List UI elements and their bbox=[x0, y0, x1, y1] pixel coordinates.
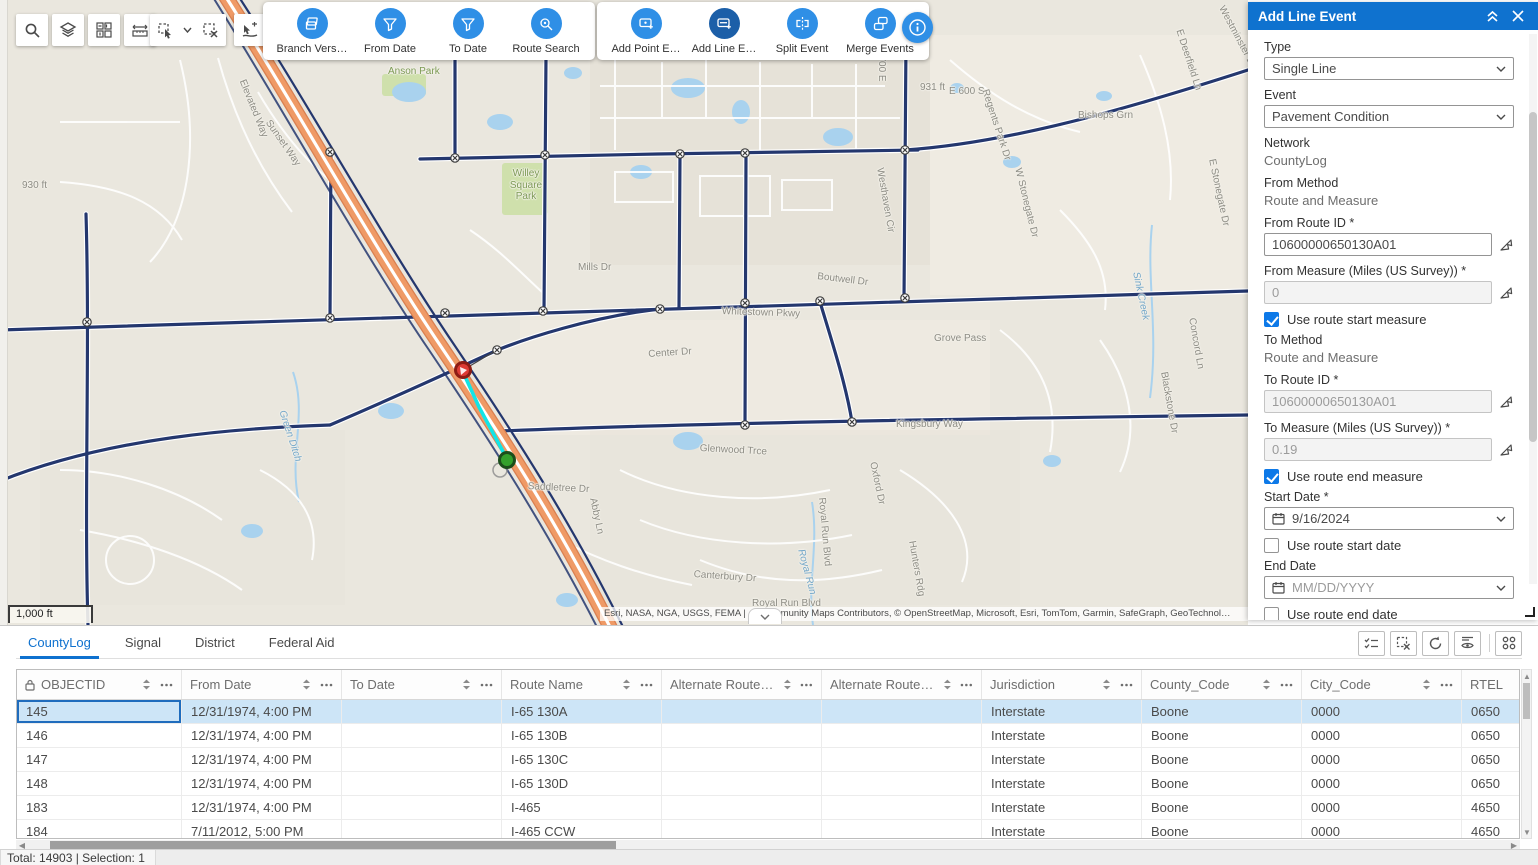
end-date-label: End Date bbox=[1264, 559, 1514, 573]
table-row[interactable]: 18312/31/1974, 4:00 PMI-465InterstateBoo… bbox=[17, 796, 1519, 820]
map-attribution: Esri, NASA, NGA, USGS, FEMA | … Communit… bbox=[600, 607, 1248, 621]
to-method-label: To Method bbox=[1264, 333, 1514, 347]
table-cell[interactable]: Interstate bbox=[982, 820, 1142, 839]
chevron-down-icon bbox=[760, 614, 770, 620]
select-tool-button[interactable] bbox=[150, 14, 181, 46]
table-cell[interactable]: Boone bbox=[1142, 700, 1302, 723]
table-cell[interactable]: 148 bbox=[17, 772, 182, 795]
map-pointer-icon bbox=[1499, 442, 1514, 457]
table-cell[interactable]: Boone bbox=[1142, 748, 1302, 771]
add-line-event-icon bbox=[709, 8, 740, 39]
chevron-down-icon bbox=[183, 27, 192, 33]
clear-selection-tool-button[interactable] bbox=[195, 14, 226, 46]
end-date-input[interactable]: MM/DD/YYYY bbox=[1264, 576, 1514, 599]
checkbox-label: Use route end measure bbox=[1287, 469, 1423, 484]
sort-icon[interactable] bbox=[1102, 679, 1111, 690]
table-cell[interactable] bbox=[662, 724, 822, 747]
add-line-event-panel: Add Line Event Type Single Line Event Pa… bbox=[1248, 2, 1538, 620]
event-select[interactable]: Pavement Condition bbox=[1264, 105, 1514, 128]
from-route-label: From Route ID * bbox=[1264, 216, 1514, 230]
double-chevron-up-icon bbox=[1486, 10, 1499, 23]
from-method-value: Route and Measure bbox=[1264, 193, 1514, 208]
table-cell[interactable] bbox=[822, 820, 982, 839]
table-tabs-row: CountyLogSignalDistrictFederal Aid bbox=[16, 628, 1522, 659]
table-cell[interactable]: Boone bbox=[1142, 796, 1302, 819]
table-cell[interactable]: Boone bbox=[1142, 820, 1302, 839]
start-date-label: Start Date * bbox=[1264, 490, 1514, 504]
table-cell[interactable]: 0000 bbox=[1302, 772, 1462, 795]
calendar-icon bbox=[1272, 512, 1285, 525]
toolbar-add-point-event[interactable]: Add Point E… bbox=[607, 8, 685, 55]
use-route-end-measure-row: Use route end measure bbox=[1264, 469, 1514, 484]
column-menu-icon[interactable] bbox=[320, 683, 333, 687]
show-selected-records-button[interactable] bbox=[1358, 631, 1385, 656]
toolbar-add-line-event[interactable]: Add Line E… bbox=[685, 8, 763, 55]
to-route-input[interactable]: 10600000650130A01 bbox=[1264, 390, 1492, 413]
column-header-route-name[interactable]: Route Name bbox=[502, 670, 662, 699]
table-cell[interactable] bbox=[662, 748, 822, 771]
pick-to-measure-on-map-button[interactable] bbox=[1499, 442, 1514, 457]
column-header-from-date[interactable]: From Date bbox=[182, 670, 342, 699]
table-cell[interactable]: I-65 130D bbox=[502, 772, 662, 795]
type-label: Type bbox=[1264, 40, 1514, 54]
chevron-down-icon bbox=[1496, 585, 1506, 591]
table-cell[interactable]: 12/31/1974, 4:00 PM bbox=[182, 748, 342, 771]
route-search-icon bbox=[531, 8, 562, 39]
from-measure-label: From Measure (Miles (US Survey)) * bbox=[1264, 264, 1514, 278]
network-value: CountyLog bbox=[1264, 153, 1514, 168]
table-cell[interactable] bbox=[342, 820, 502, 839]
type-select[interactable]: Single Line bbox=[1264, 57, 1514, 80]
table-cell[interactable]: 0000 bbox=[1302, 700, 1462, 723]
chevron-down-icon bbox=[1496, 516, 1506, 522]
basemap-tool-button[interactable] bbox=[88, 14, 120, 46]
toolbar-item-label: To Date bbox=[449, 43, 487, 55]
column-header-to-date[interactable]: To Date bbox=[342, 670, 502, 699]
use-route-start-measure-row: Use route start measure bbox=[1264, 312, 1514, 327]
search-tool-button[interactable] bbox=[16, 14, 48, 46]
column-label: City_Code bbox=[1310, 677, 1371, 692]
map-canvas[interactable]: Elevated WaySunset WayAnson ParkWilley S… bbox=[0, 0, 1248, 625]
table-cell[interactable] bbox=[342, 724, 502, 747]
table-cell[interactable]: I-465 bbox=[502, 796, 662, 819]
to-measure-label: To Measure (Miles (US Survey)) * bbox=[1264, 421, 1514, 435]
toolbar-from-date[interactable]: From Date bbox=[351, 8, 429, 55]
panel-title: Add Line Event bbox=[1258, 9, 1476, 24]
to-date-filter-icon bbox=[453, 8, 484, 39]
refresh-icon bbox=[1428, 636, 1443, 651]
basemap-grid-icon bbox=[96, 22, 112, 38]
column-menu-icon[interactable] bbox=[960, 683, 973, 687]
table-cell[interactable] bbox=[342, 772, 502, 795]
sort-icon[interactable] bbox=[783, 679, 792, 690]
table-cell[interactable] bbox=[662, 772, 822, 795]
table-toolbar bbox=[1353, 631, 1522, 656]
map-pointer-icon bbox=[1499, 237, 1514, 252]
selection-list-icon bbox=[1364, 637, 1379, 650]
type-value: Single Line bbox=[1272, 61, 1336, 76]
lock-icon bbox=[25, 679, 35, 691]
refresh-table-button[interactable] bbox=[1422, 631, 1449, 656]
clear-table-selection-button[interactable] bbox=[1390, 631, 1417, 656]
table-cell[interactable] bbox=[822, 700, 982, 723]
table-cell[interactable]: 0650 bbox=[1462, 748, 1520, 771]
table-cell[interactable]: 0000 bbox=[1302, 748, 1462, 771]
tab-signal[interactable]: Signal bbox=[113, 628, 173, 658]
table-cell[interactable]: I-65 130B bbox=[502, 724, 662, 747]
column-menu-icon[interactable] bbox=[1120, 683, 1133, 687]
attribute-table-panel: CountyLogSignalDistrictFederal Aid bbox=[0, 625, 1538, 865]
pick-from-route-on-map-button[interactable] bbox=[1499, 237, 1514, 252]
table-cell[interactable]: I-65 130A bbox=[502, 700, 662, 723]
add-point-event-icon bbox=[631, 8, 662, 39]
scale-bar: 1,000 ft bbox=[8, 605, 93, 623]
column-label: Alternate Route … bbox=[670, 677, 775, 692]
from-measure-input[interactable]: 0 bbox=[1264, 281, 1492, 304]
use-route-start-date-row: Use route start date bbox=[1264, 538, 1514, 553]
column-menu-icon[interactable] bbox=[160, 683, 173, 687]
table-row[interactable]: 14512/31/1974, 4:00 PMI-65 130AInterstat… bbox=[17, 700, 1519, 724]
table-cell[interactable]: 0650 bbox=[1462, 700, 1520, 723]
split-event-icon bbox=[787, 8, 818, 39]
column-label: Alternate Route … bbox=[830, 677, 935, 692]
table-cell[interactable]: Boone bbox=[1142, 724, 1302, 747]
hide-fields-button[interactable] bbox=[1454, 631, 1481, 656]
panel-resize-handle[interactable] bbox=[1525, 607, 1535, 617]
column-label: To Date bbox=[350, 677, 395, 692]
start-date-input[interactable]: 9/16/2024 bbox=[1264, 507, 1514, 530]
sort-icon[interactable] bbox=[462, 679, 471, 690]
table-row[interactable]: 1847/11/2012, 5:00 PMI-465 CCWInterstate… bbox=[17, 820, 1519, 839]
info-button[interactable] bbox=[902, 12, 933, 43]
table-cell[interactable]: 12/31/1974, 4:00 PM bbox=[182, 796, 342, 819]
panel-body: Type Single Line Event Pavement Conditio… bbox=[1248, 30, 1538, 620]
close-panel-button[interactable] bbox=[1508, 6, 1528, 26]
close-icon bbox=[1512, 10, 1524, 22]
use-route-end-date-row: Use route end date bbox=[1264, 607, 1514, 620]
info-icon bbox=[909, 19, 926, 36]
toolbar-item-label: Branch Vers… bbox=[277, 43, 348, 55]
use-route-end-date-checkbox[interactable] bbox=[1264, 607, 1279, 620]
table-cell[interactable]: 12/31/1974, 4:00 PM bbox=[182, 724, 342, 747]
table-row[interactable]: 14812/31/1974, 4:00 PMI-65 130DInterstat… bbox=[17, 772, 1519, 796]
scroll-up-arrow[interactable]: ▲ bbox=[1522, 670, 1532, 682]
table-cell[interactable]: 0000 bbox=[1302, 724, 1462, 747]
select-cursor-icon bbox=[157, 22, 174, 39]
route-start-marker bbox=[456, 363, 471, 378]
toolbar-split-event[interactable]: Split Event bbox=[763, 8, 841, 55]
left-edge-strip bbox=[0, 0, 8, 625]
table-cell[interactable]: Interstate bbox=[982, 748, 1142, 771]
select-route-icon bbox=[241, 21, 259, 39]
to-method-value: Route and Measure bbox=[1264, 350, 1514, 365]
route-end-marker bbox=[500, 453, 515, 468]
toolbar-item-label: Split Event bbox=[776, 43, 829, 55]
table-cell[interactable] bbox=[662, 796, 822, 819]
use-route-start-measure-checkbox[interactable] bbox=[1264, 312, 1279, 327]
network-label: Network bbox=[1264, 136, 1514, 150]
collapse-table-button[interactable] bbox=[748, 608, 782, 624]
column-menu-icon[interactable] bbox=[1440, 683, 1453, 687]
sort-icon[interactable] bbox=[1422, 679, 1431, 690]
column-header-alternate-route-[interactable]: Alternate Route … bbox=[822, 670, 982, 699]
table-cell[interactable]: 12/31/1974, 4:00 PM bbox=[182, 700, 342, 723]
toolbar-item-label: From Date bbox=[364, 43, 416, 55]
tab-district[interactable]: District bbox=[183, 628, 247, 658]
column-header-rtel[interactable]: RTEL bbox=[1462, 670, 1520, 699]
toolbar-item-label: Merge Events bbox=[846, 43, 914, 55]
chevron-down-icon bbox=[1496, 114, 1506, 120]
toolbar-item-label: Add Line E… bbox=[692, 43, 757, 55]
table-status-bar: Total: 14903 | Selection: 1 bbox=[0, 849, 1538, 865]
end-date-placeholder: MM/DD/YYYY bbox=[1292, 580, 1496, 595]
table-cell[interactable] bbox=[662, 700, 822, 723]
from-route-input[interactable]: 10600000650130A01 bbox=[1264, 233, 1492, 256]
table-cell[interactable]: 147 bbox=[17, 748, 182, 771]
sort-icon[interactable] bbox=[142, 679, 151, 690]
clear-selection-icon bbox=[1396, 636, 1411, 651]
use-route-start-date-checkbox[interactable] bbox=[1264, 538, 1279, 553]
search-icon bbox=[24, 22, 41, 39]
calendar-icon bbox=[1272, 581, 1285, 594]
table-cell[interactable]: 0000 bbox=[1302, 796, 1462, 819]
column-label: County_Code bbox=[1150, 677, 1230, 692]
pick-from-measure-on-map-button[interactable] bbox=[1499, 285, 1514, 300]
edit-events-toolbar: Add Point E… Add Line E… Split Event Mer… bbox=[597, 2, 929, 60]
column-header-county-code[interactable]: County_Code bbox=[1142, 670, 1302, 699]
checkbox-label: Use route start measure bbox=[1287, 312, 1426, 327]
toolbar-item-label: Add Point E… bbox=[611, 43, 680, 55]
column-label: RTEL bbox=[1470, 677, 1503, 692]
measure-icon bbox=[131, 22, 149, 38]
column-label: Route Name bbox=[510, 677, 583, 692]
table-cell[interactable] bbox=[342, 700, 502, 723]
map-pointer-icon bbox=[1499, 285, 1514, 300]
from-method-label: From Method bbox=[1264, 176, 1514, 190]
event-value: Pavement Condition bbox=[1272, 109, 1389, 124]
chevron-down-icon bbox=[1496, 66, 1506, 72]
column-label: OBJECTID bbox=[41, 677, 105, 692]
table-cell[interactable]: 0000 bbox=[1302, 820, 1462, 839]
column-label: From Date bbox=[190, 677, 251, 692]
table-cell[interactable]: 0650 bbox=[1462, 724, 1520, 747]
layers-icon bbox=[59, 21, 77, 39]
table-cell[interactable]: 0650 bbox=[1462, 772, 1520, 795]
scroll-down-arrow[interactable]: ▼ bbox=[1522, 826, 1532, 838]
panel-scrollbar-thumb[interactable] bbox=[1529, 112, 1537, 442]
table-cell[interactable]: I-465 CCW bbox=[502, 820, 662, 839]
table-vscroll-thumb[interactable] bbox=[1523, 683, 1530, 719]
checkbox-label: Use route end date bbox=[1287, 607, 1398, 620]
record-count-status: Total: 14903 | Selection: 1 bbox=[0, 850, 156, 865]
select-tool-dropdown[interactable] bbox=[181, 14, 195, 46]
toolbar-item-label: Route Search bbox=[512, 43, 579, 55]
table-cell[interactable] bbox=[342, 748, 502, 771]
toolbar-branch-version[interactable]: Branch Vers… bbox=[273, 8, 351, 55]
table-cell[interactable]: Interstate bbox=[982, 700, 1142, 723]
column-header-city-code[interactable]: City_Code bbox=[1302, 670, 1462, 699]
panel-scrollbar[interactable] bbox=[1529, 34, 1537, 584]
sort-icon[interactable] bbox=[302, 679, 311, 690]
attribute-table: OBJECTIDFrom DateTo DateRoute NameAltern… bbox=[16, 669, 1520, 839]
table-rows: 14512/31/1974, 4:00 PMI-65 130AInterstat… bbox=[17, 700, 1519, 839]
table-header-row: OBJECTIDFrom DateTo DateRoute NameAltern… bbox=[17, 670, 1519, 700]
select-route-tool-button[interactable] bbox=[234, 14, 266, 46]
actions-grid-icon bbox=[1502, 636, 1516, 650]
table-cell[interactable]: 146 bbox=[17, 724, 182, 747]
tab-countylog[interactable]: CountyLog bbox=[16, 628, 103, 658]
panel-header: Add Line Event bbox=[1248, 2, 1538, 30]
table-tabs: CountyLogSignalDistrictFederal Aid bbox=[16, 628, 357, 658]
event-label: Event bbox=[1264, 88, 1514, 102]
merge-events-icon bbox=[865, 8, 896, 39]
table-cell[interactable] bbox=[822, 748, 982, 771]
select-tool-group bbox=[150, 14, 226, 46]
table-options-button[interactable] bbox=[1495, 631, 1522, 656]
table-cell[interactable]: I-65 130C bbox=[502, 748, 662, 771]
table-cell[interactable]: 145 bbox=[17, 700, 182, 723]
layers-tool-button[interactable] bbox=[52, 14, 84, 46]
column-menu-icon[interactable] bbox=[640, 683, 653, 687]
event-editor-app: Elevated WaySunset WayAnson ParkWilley S… bbox=[0, 0, 1538, 865]
tab-federal-aid[interactable]: Federal Aid bbox=[257, 628, 347, 658]
collapse-panel-button[interactable] bbox=[1482, 6, 1502, 26]
sort-icon[interactable] bbox=[622, 679, 631, 690]
column-menu-icon[interactable] bbox=[800, 683, 813, 687]
to-measure-input[interactable]: 0.19 bbox=[1264, 438, 1492, 461]
map-pointer-icon bbox=[1499, 394, 1514, 409]
table-cell[interactable]: 4650 bbox=[1462, 820, 1520, 839]
toolbar-route-search[interactable]: Route Search bbox=[507, 8, 585, 55]
table-cell[interactable] bbox=[822, 724, 982, 747]
table-cell[interactable]: 183 bbox=[17, 796, 182, 819]
to-route-label: To Route ID * bbox=[1264, 373, 1514, 387]
use-route-end-measure-checkbox[interactable] bbox=[1264, 469, 1279, 484]
table-cell[interactable] bbox=[822, 772, 982, 795]
branch-version-icon bbox=[297, 8, 328, 39]
attribute-set-toolbar: Branch Vers… From Date To Date Route Sea… bbox=[263, 2, 595, 60]
table-row[interactable]: 14712/31/1974, 4:00 PMI-65 130CInterstat… bbox=[17, 748, 1519, 772]
from-date-filter-icon bbox=[375, 8, 406, 39]
hide-fields-eye-icon bbox=[1460, 636, 1475, 650]
toolbar-divider bbox=[1489, 634, 1490, 652]
table-cell[interactable] bbox=[822, 796, 982, 819]
start-date-value: 9/16/2024 bbox=[1292, 511, 1496, 526]
column-menu-icon[interactable] bbox=[480, 683, 493, 687]
table-cell[interactable]: Interstate bbox=[982, 724, 1142, 747]
pick-to-route-on-map-button[interactable] bbox=[1499, 394, 1514, 409]
column-menu-icon[interactable] bbox=[1280, 683, 1293, 687]
clear-selection-icon bbox=[202, 22, 219, 39]
toolbar-to-date[interactable]: To Date bbox=[429, 8, 507, 55]
table-cell[interactable]: Interstate bbox=[982, 772, 1142, 795]
table-row[interactable]: 14612/31/1974, 4:00 PMI-65 130BInterstat… bbox=[17, 724, 1519, 748]
table-cell[interactable] bbox=[662, 820, 822, 839]
column-header-jurisdiction[interactable]: Jurisdiction bbox=[982, 670, 1142, 699]
table-cell[interactable]: 7/11/2012, 5:00 PM bbox=[182, 820, 342, 839]
table-cell[interactable]: Boone bbox=[1142, 772, 1302, 795]
column-header-alternate-route-[interactable]: Alternate Route … bbox=[662, 670, 822, 699]
table-cell[interactable]: 4650 bbox=[1462, 796, 1520, 819]
table-cell[interactable] bbox=[342, 796, 502, 819]
table-cell[interactable]: 184 bbox=[17, 820, 182, 839]
column-header-objectid[interactable]: OBJECTID bbox=[17, 670, 182, 699]
sort-icon[interactable] bbox=[1262, 679, 1271, 690]
checkbox-label: Use route start date bbox=[1287, 538, 1401, 553]
basemap-graphics bbox=[0, 0, 1248, 625]
table-cell[interactable]: Interstate bbox=[982, 796, 1142, 819]
column-label: Jurisdiction bbox=[990, 677, 1055, 692]
sort-icon[interactable] bbox=[943, 679, 952, 690]
table-cell[interactable]: 12/31/1974, 4:00 PM bbox=[182, 772, 342, 795]
